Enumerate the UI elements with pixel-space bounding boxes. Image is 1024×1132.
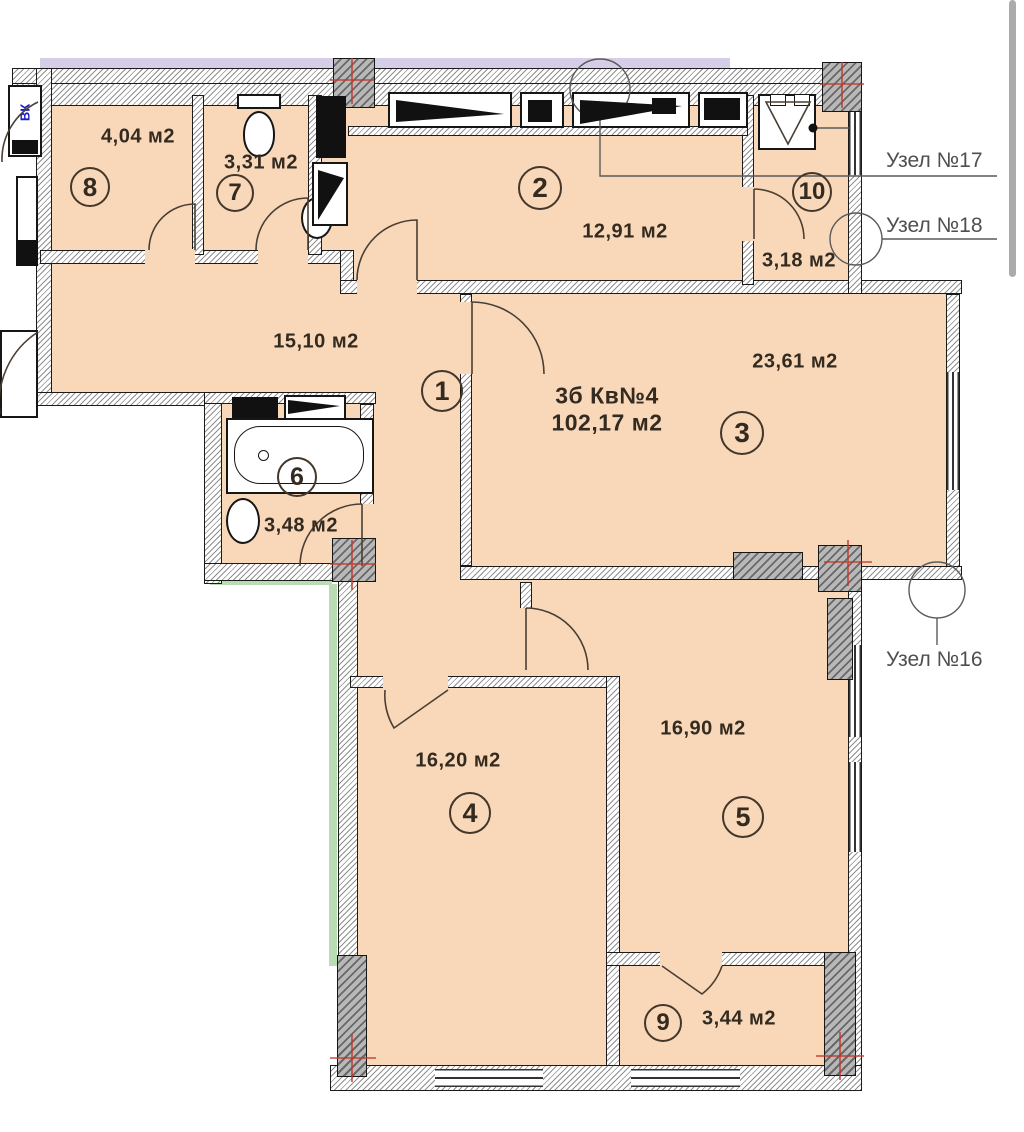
room-7-number: 7: [216, 174, 254, 212]
room-10-area: 3,18 м2: [762, 250, 836, 273]
window-room9-bottom: [631, 1069, 740, 1087]
floorplan-canvas: ВК: [0, 0, 1024, 1132]
column-top-right: [822, 62, 862, 112]
corridor-floor-upper: [374, 392, 462, 584]
room-8-area: 4,04 м2: [101, 126, 175, 149]
node16-label: Узел №16: [886, 648, 983, 672]
room-4-number: 4: [449, 792, 491, 834]
bottom-exterior-wall: [330, 1065, 862, 1091]
bath-counter: [284, 395, 346, 420]
room-2-area: 12,91 м2: [582, 221, 668, 244]
toilet-bowl: [243, 111, 275, 157]
room-1-area: 15,10 м2: [273, 331, 359, 354]
apartment-type-label: 3б Кв№4: [555, 383, 659, 410]
washer-block: [232, 397, 278, 418]
door-gap-room2: [357, 279, 417, 295]
shaft-cabinet: [312, 162, 348, 226]
kitchen-counter-4: [698, 92, 748, 128]
corridor-floor-lower: [358, 580, 523, 685]
apartment-area-label: 102,17 м2: [551, 410, 662, 437]
shower-valve-left: [770, 94, 786, 106]
window-room4-bottom: [435, 1069, 543, 1087]
room-1-number: 1: [421, 370, 463, 412]
door-gap-room8: [145, 249, 195, 265]
column-room5-pier: [827, 598, 853, 680]
column-mid-center: [733, 552, 803, 580]
room5-wall-stub: [520, 582, 532, 610]
room-9-area: 3,44 м2: [702, 1008, 776, 1031]
wall-room4-room5: [606, 676, 620, 1070]
bathroom-left-wall: [204, 392, 222, 584]
door-gap-room7: [258, 249, 308, 265]
wall-room8-room7: [192, 95, 204, 255]
room-10-number: 10: [792, 172, 832, 212]
room-4-floor: [358, 685, 610, 1070]
door-gap-room10: [741, 187, 755, 241]
room3-bottom-wall: [460, 566, 962, 580]
corridor-floor-join: [376, 563, 462, 585]
room2-room3-top-wall: [340, 280, 962, 294]
stair-wedge-1: [12, 140, 38, 154]
room-3-floor: [462, 280, 960, 578]
door-gap-room4: [383, 675, 448, 689]
hall-bottom-wall: [24, 392, 216, 406]
door-gap-room3: [459, 302, 473, 374]
window-room5-lower: [849, 762, 861, 852]
window-room3: [947, 372, 959, 490]
column-bottom-right: [824, 952, 856, 1076]
room-2-number: 2: [518, 166, 562, 210]
sink-bathroom: [226, 498, 260, 544]
shower-valve-right: [794, 94, 810, 106]
room-4-area: 16,20 м2: [415, 750, 501, 773]
stair-wedge-2: [16, 240, 38, 266]
column-bottom-left: [337, 955, 367, 1077]
top-exterior-wall-outer: [12, 68, 862, 84]
kitchen-counter-2: [520, 92, 564, 128]
shaft-block: [316, 96, 346, 158]
node17-label: Узел №17: [886, 149, 983, 173]
kitchen-counter-3: [572, 92, 690, 128]
kitchen-counter-1: [388, 92, 512, 128]
room-8-number: 8: [70, 167, 110, 207]
top-lavender-strip: [40, 58, 730, 68]
room-7-area: 3,31 м2: [224, 152, 298, 175]
vk-shaft-label: ВК: [18, 97, 33, 129]
room-5-area: 16,90 м2: [660, 718, 746, 741]
room-3-area: 23,61 м2: [752, 351, 838, 374]
scrollbar-thumb[interactable]: [1009, 0, 1016, 277]
room-5-number: 5: [722, 796, 764, 838]
column-mid-right: [818, 545, 862, 592]
balcony-green-strip: [329, 584, 337, 966]
room-3-number: 3: [720, 411, 764, 455]
bathtub-drain: [258, 450, 269, 461]
room-9-number: 9: [644, 1004, 682, 1042]
door-gap-room9: [660, 951, 722, 967]
room-6-number: 6: [277, 457, 317, 497]
door-gap-room5: [519, 608, 533, 670]
stair-box-lower: [0, 330, 38, 418]
column-mid-left: [332, 538, 376, 582]
room-6-area: 3,48 м2: [264, 515, 338, 538]
room-5-floor-upper: [523, 578, 848, 678]
node18-label: Узел №18: [886, 214, 983, 238]
window-right-upper: [849, 105, 861, 175]
toilet-tank: [237, 94, 281, 109]
